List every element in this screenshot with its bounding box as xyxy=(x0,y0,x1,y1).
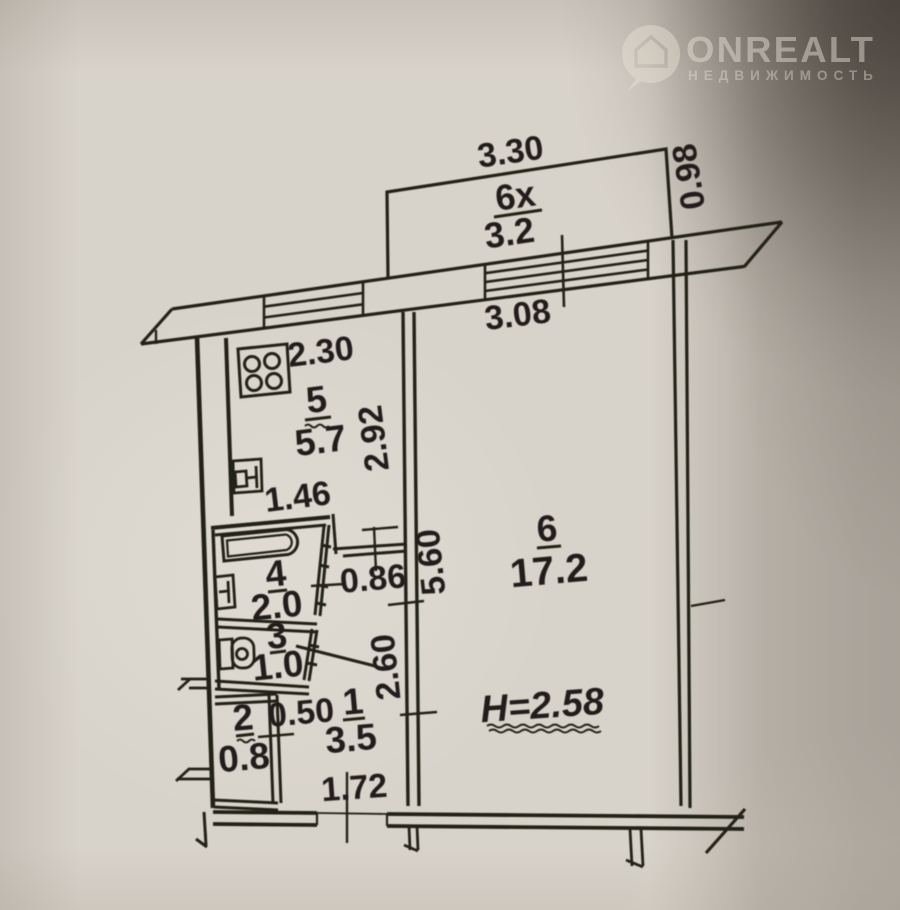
svg-text:ONREALT: ONREALT xyxy=(686,29,875,70)
svg-text:НЕДВИЖИМОСТЬ: НЕДВИЖИМОСТЬ xyxy=(688,68,879,83)
